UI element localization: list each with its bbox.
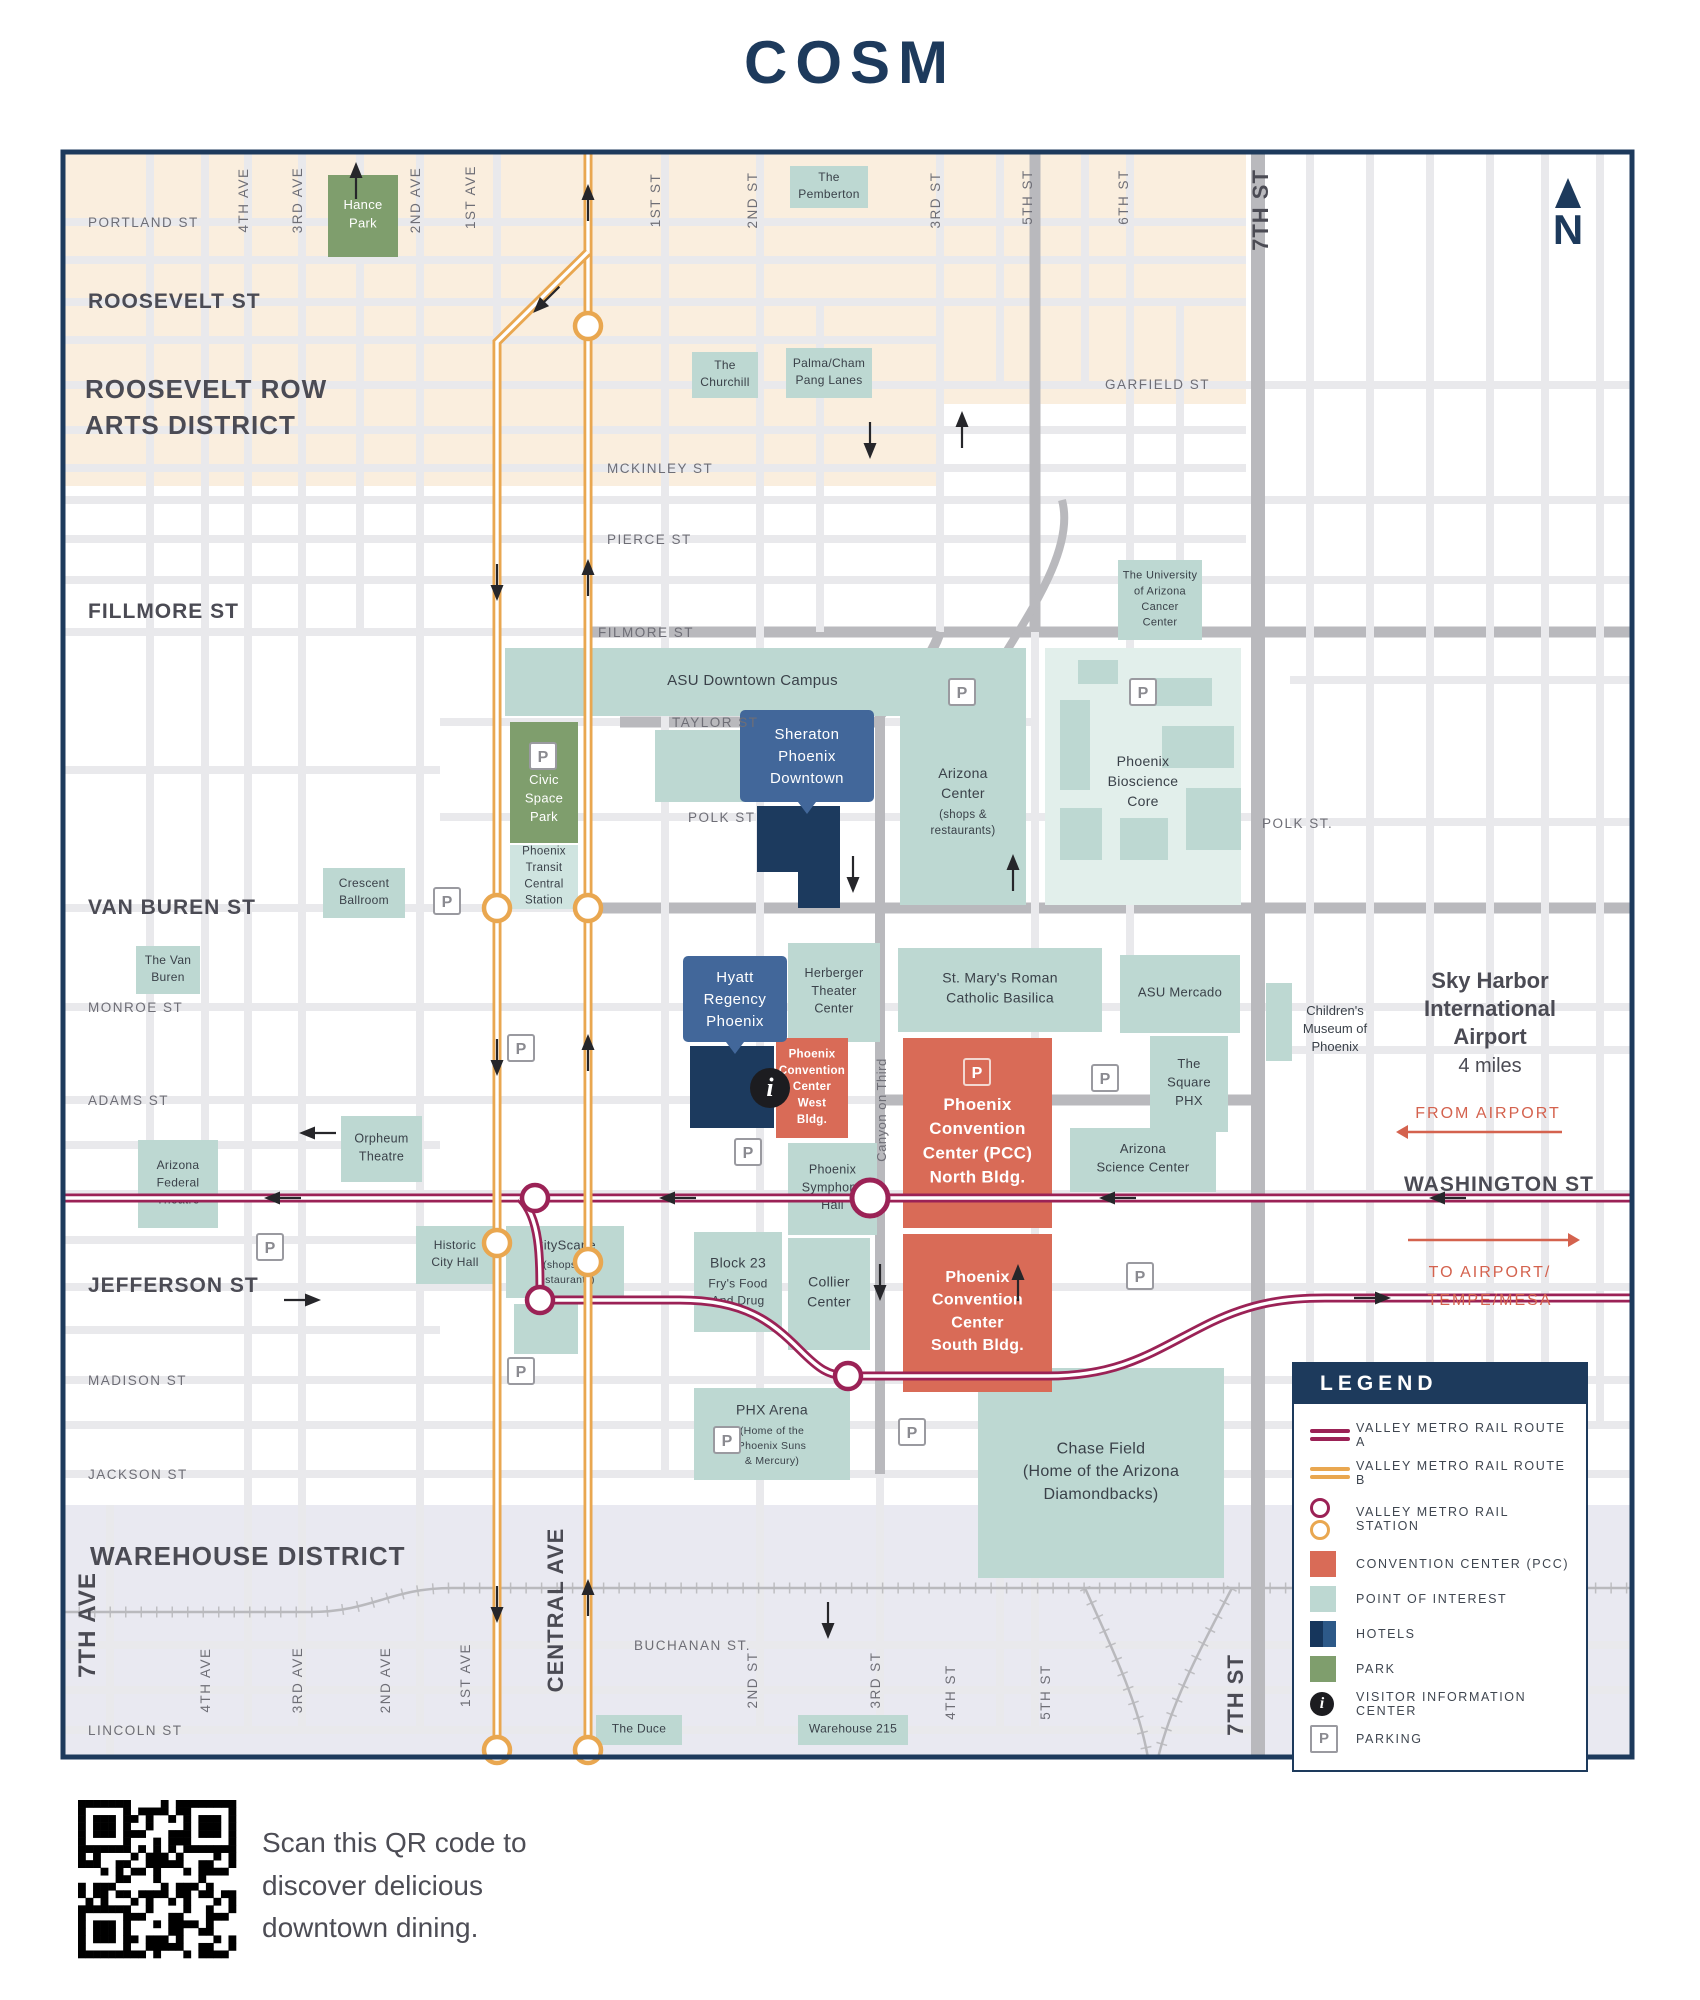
qr-module: [191, 1800, 199, 1808]
hotel-callout-label: Phoenix: [706, 1013, 764, 1030]
poi-label: Space: [525, 790, 563, 805]
qr-module: [161, 1935, 169, 1943]
poi-label: North Bldg.: [930, 1167, 1026, 1186]
qr-module: [146, 1860, 154, 1868]
qr-module: [101, 1868, 109, 1876]
poi-label: Palma/Cham: [793, 356, 865, 370]
hotel-callout-label: Sheraton: [775, 726, 840, 743]
qr-module: [191, 1920, 199, 1928]
street-label: LINCOLN ST: [88, 1723, 183, 1738]
qr-module: [206, 1823, 214, 1831]
street-label: 1ST AVE: [458, 1643, 473, 1707]
street-label: JEFFERSON ST: [88, 1274, 259, 1297]
street-label: Airport: [1453, 1024, 1527, 1049]
qr-module: [108, 1815, 116, 1823]
poi-label: Convention: [929, 1119, 1026, 1138]
street-label: FILMORE ST: [598, 625, 694, 640]
qr-module: [176, 1830, 184, 1838]
rail-station: [835, 1363, 861, 1389]
poi-label: Center: [1143, 617, 1178, 629]
qr-module: [101, 1928, 109, 1936]
qr-module: [108, 1928, 116, 1936]
qr-module: [176, 1890, 184, 1898]
qr-module: [146, 1890, 154, 1898]
poi-label: The Duce: [612, 1721, 666, 1735]
poi-label: Science Center: [1096, 1160, 1189, 1175]
legend-item-label: PARKING: [1356, 1732, 1423, 1746]
parking-icon-letter: P: [516, 1364, 527, 1381]
qr-module: [123, 1860, 131, 1868]
qr-module: [101, 1935, 109, 1943]
legend-item-route-b: VALLEY METRO RAIL ROUTE B: [1310, 1454, 1576, 1492]
qr-module: [176, 1943, 184, 1951]
qr-module: [86, 1860, 94, 1868]
qr-module: [206, 1845, 214, 1853]
poi-label: Chase Field: [1057, 1440, 1146, 1457]
street-label: PORTLAND ST: [88, 215, 199, 230]
parking-icon-letter: P: [1100, 1071, 1111, 1088]
qr-module: [93, 1800, 101, 1808]
poi-label: St. Mary's Roman: [942, 970, 1058, 986]
qr-module: [123, 1830, 131, 1838]
qr-module: [153, 1875, 161, 1883]
qr-module: [101, 1905, 109, 1913]
poi-label: Bioscience: [1108, 773, 1179, 789]
parking-icon: P: [1310, 1725, 1356, 1753]
poi-label: Pemberton: [798, 187, 859, 201]
qr-module: [168, 1913, 176, 1921]
qr-module: [191, 1845, 199, 1853]
legend-item-label: POINT OF INTEREST: [1356, 1592, 1507, 1606]
poi-label: Theatre: [359, 1149, 404, 1163]
qr-module: [183, 1920, 191, 1928]
qr-module: [183, 1883, 191, 1891]
qr-module: [191, 1883, 199, 1891]
qr-module: [213, 1950, 221, 1958]
qr-module: [138, 1808, 146, 1816]
qr-module: [138, 1913, 146, 1921]
poi-label: Cancer: [1141, 601, 1178, 613]
street-label: 4TH AVE: [236, 167, 251, 232]
qr-module: [153, 1845, 161, 1853]
qr-module: [206, 1920, 214, 1928]
qr-module: [228, 1860, 236, 1868]
qr-module: [78, 1845, 86, 1853]
poi-label: Arizona: [938, 765, 988, 781]
street-label: 4 miles: [1458, 1055, 1521, 1077]
qr-module: [153, 1920, 161, 1928]
street-label: 2ND ST: [745, 171, 760, 228]
qr-module: [101, 1920, 109, 1928]
poi-label: restaurants): [931, 825, 996, 837]
street-label: ARTS DISTRICT: [85, 410, 296, 440]
qr-module: [123, 1935, 131, 1943]
qr-module: [153, 1935, 161, 1943]
legend-items: VALLEY METRO RAIL ROUTE AVALLEY METRO RA…: [1294, 1404, 1586, 1770]
poi-label: (Home of the: [740, 1425, 804, 1437]
qr-module: [213, 1898, 221, 1906]
street-label: 3RD ST: [868, 1651, 883, 1708]
qr-module: [123, 1838, 131, 1846]
station-icon: [1310, 1497, 1356, 1541]
qr-module: [146, 1823, 154, 1831]
qr-module: [213, 1853, 221, 1861]
poi-label: Diamondbacks): [1043, 1486, 1158, 1503]
poi-icon: [1310, 1586, 1356, 1612]
qr-module: [228, 1898, 236, 1906]
street-label: Sky Harbor: [1431, 968, 1549, 993]
poi-label: PHX Arena: [736, 1401, 808, 1417]
qr-module: [123, 1808, 131, 1816]
pcc-icon: [1310, 1551, 1356, 1577]
qr-module: [123, 1905, 131, 1913]
qr-module: [146, 1853, 154, 1861]
street-label: 1ST AVE: [463, 165, 478, 229]
qr-module: [86, 1845, 94, 1853]
legend-item-park: PARK: [1310, 1651, 1576, 1686]
poi-label: & Mercury): [745, 1455, 799, 1467]
street-label: 4TH AVE: [198, 1647, 213, 1712]
street-label: 7TH AVE: [74, 1572, 101, 1678]
qr-module: [93, 1883, 101, 1891]
qr-module: [78, 1905, 86, 1913]
poi-label: The: [1177, 1056, 1200, 1071]
qr-module: [108, 1845, 116, 1853]
qr-module: [123, 1920, 131, 1928]
street-label: 5TH ST: [1020, 169, 1035, 225]
qr-module: [78, 1883, 86, 1891]
rail-station: [522, 1185, 548, 1211]
qr-module: [123, 1950, 131, 1958]
qr-module: [206, 1905, 214, 1913]
qr-module: [78, 1853, 86, 1861]
qr-module: [131, 1935, 139, 1943]
qr-module: [176, 1838, 184, 1846]
poi-label: Phoenix Suns: [738, 1440, 806, 1452]
poi-label: The: [714, 358, 736, 372]
qr-module: [183, 1823, 191, 1831]
parking-icon-letter: P: [1135, 1269, 1146, 1286]
poi-label: Center: [951, 1314, 1003, 1331]
qr-module: [161, 1853, 169, 1861]
legend-item-pcc: CONVENTION CENTER (PCC): [1310, 1546, 1576, 1581]
poi-label: Square: [1167, 1074, 1211, 1089]
qr-module: [206, 1815, 214, 1823]
qr-module: [131, 1898, 139, 1906]
parking-icon-letter: P: [516, 1041, 527, 1058]
visitor-info-icon-letter: i: [766, 1073, 774, 1102]
qr-module: [78, 1815, 86, 1823]
qr-module: [183, 1905, 191, 1913]
qr-module: [168, 1830, 176, 1838]
legend-item-parking: PPARKING: [1310, 1721, 1576, 1756]
qr-module: [108, 1883, 116, 1891]
poi-label: Pang Lanes: [795, 373, 862, 387]
street-label: BUCHANAN ST.: [634, 1638, 751, 1653]
qr-module: [168, 1898, 176, 1906]
street-label: WAREHOUSE DISTRICT: [90, 1541, 406, 1571]
legend-item-info: iVISITOR INFORMATION CENTER: [1310, 1686, 1576, 1721]
qr-module: [153, 1890, 161, 1898]
poi-label: of Arizona: [1134, 585, 1187, 597]
qr-module: [101, 1815, 109, 1823]
rail-station: [484, 895, 510, 921]
poi-label: (Home of the Arizona: [1023, 1463, 1179, 1480]
qr-module: [168, 1920, 176, 1928]
qr-module: [123, 1845, 131, 1853]
qr-module: [86, 1800, 94, 1808]
street-label: 2ND AVE: [378, 1647, 393, 1714]
qr-module: [198, 1845, 206, 1853]
poi-label: Convention: [779, 1065, 845, 1077]
qr-module: [146, 1905, 154, 1913]
qr-module: [161, 1890, 169, 1898]
map-legend: LEGEND VALLEY METRO RAIL ROUTE AVALLEY M…: [1292, 1362, 1588, 1772]
qr-module: [86, 1950, 94, 1958]
qr-module: [168, 1860, 176, 1868]
qr-module: [221, 1950, 229, 1958]
poi-label: Center: [793, 1081, 831, 1093]
qr-module: [183, 1898, 191, 1906]
legend-item-label: VISITOR INFORMATION CENTER: [1356, 1690, 1576, 1718]
street-label: WASHINGTON ST: [1404, 1173, 1594, 1196]
compass-north-letter: N: [1553, 206, 1583, 253]
qr-module: [153, 1860, 161, 1868]
street-label: Canyon on Third: [874, 1058, 889, 1161]
qr-module: [123, 1913, 131, 1921]
qr-module: [123, 1890, 131, 1898]
poi-label: Phoenix: [945, 1269, 1009, 1286]
route-b-icon: [1310, 1465, 1356, 1481]
qr-module: [161, 1860, 169, 1868]
qr-module: [228, 1808, 236, 1816]
street-label: 7TH ST: [1248, 169, 1273, 251]
qr-module: [116, 1845, 124, 1853]
qr-module: [86, 1898, 94, 1906]
qr-module: [183, 1838, 191, 1846]
poi-block: [1266, 983, 1292, 1061]
rail-station: [575, 313, 601, 339]
qr-module: [161, 1800, 169, 1808]
qr-module: [161, 1943, 169, 1951]
qr-module: [146, 1935, 154, 1943]
campus-building-block: [1078, 660, 1118, 684]
qr-module: [78, 1920, 86, 1928]
qr-module: [131, 1853, 139, 1861]
street-label: 6TH ST: [1116, 169, 1131, 225]
qr-module: [146, 1943, 154, 1951]
poi-label: Collier: [808, 1274, 850, 1290]
qr-module: [213, 1815, 221, 1823]
qr-module: [153, 1943, 161, 1951]
street-label: FILLMORE ST: [88, 600, 239, 623]
street-label: TAYLOR ST: [672, 715, 759, 730]
poi-label: Park: [349, 216, 377, 231]
qr-module: [213, 1830, 221, 1838]
qr-module: [108, 1950, 116, 1958]
legend-item-label: VALLEY METRO RAIL STATION: [1356, 1505, 1576, 1533]
qr-module: [176, 1808, 184, 1816]
poi-label: Block 23: [710, 1255, 766, 1271]
qr-module: [93, 1815, 101, 1823]
qr-module: [93, 1830, 101, 1838]
qr-module: [116, 1890, 124, 1898]
qr-module: [221, 1800, 229, 1808]
qr-module: [198, 1815, 206, 1823]
qr-module: [101, 1845, 109, 1853]
street-label: TEMPE/MESA: [1428, 1292, 1553, 1309]
street-label: MONROE ST: [88, 1000, 183, 1015]
qr-module: [206, 1890, 214, 1898]
qr-module: [176, 1928, 184, 1936]
convention-center-block: [903, 1234, 1052, 1392]
qr-module: [206, 1868, 214, 1876]
street-label: 2ND ST: [745, 1651, 760, 1708]
qr-module: [78, 1808, 86, 1816]
poi-label: Bldg.: [797, 1114, 827, 1126]
qr-module: [138, 1845, 146, 1853]
street-label: Museum of: [1303, 1021, 1368, 1036]
parking-icon-letter: P: [722, 1433, 733, 1450]
qr-module: [198, 1950, 206, 1958]
qr-module: [228, 1838, 236, 1846]
poi-label: (shops &: [939, 809, 987, 821]
street-label: GARFIELD ST: [1105, 377, 1210, 392]
qr-module: [168, 1815, 176, 1823]
hotel-callout-label: Downtown: [770, 770, 844, 787]
legend-item-hotel: HOTELS: [1310, 1616, 1576, 1651]
poi-label: Fry's Food: [708, 1277, 767, 1291]
qr-module: [198, 1860, 206, 1868]
qr-module: [78, 1943, 86, 1951]
campus-building-block: [1150, 678, 1212, 706]
qr-module: [93, 1845, 101, 1853]
parking-icon-letter: P: [743, 1145, 754, 1162]
qr-module: [123, 1800, 131, 1808]
qr-module: [183, 1800, 191, 1808]
poi-label: Phoenix: [522, 846, 566, 858]
qr-module: [206, 1830, 214, 1838]
qr-module: [228, 1890, 236, 1898]
hotel-icon: [1310, 1621, 1356, 1647]
street-label: International: [1424, 996, 1556, 1021]
street-label: FROM AIRPORT: [1415, 1105, 1561, 1122]
qr-module: [116, 1905, 124, 1913]
qr-module: [198, 1890, 206, 1898]
qr-module: [228, 1853, 236, 1861]
qr-module: [78, 1823, 86, 1831]
route-a-icon: [1310, 1427, 1356, 1443]
qr-module: [108, 1830, 116, 1838]
poi-block: [655, 730, 745, 802]
qr-module: [93, 1935, 101, 1943]
qr-module: [93, 1928, 101, 1936]
qr-module: [206, 1928, 214, 1936]
qr-module: [78, 1913, 86, 1921]
qr-module: [161, 1883, 169, 1891]
qr-module: [108, 1905, 116, 1913]
qr-module: [228, 1905, 236, 1913]
poi-label: South Bldg.: [931, 1337, 1024, 1354]
qr-module: [116, 1950, 124, 1958]
qr-module: [153, 1808, 161, 1816]
qr-module: [198, 1868, 206, 1876]
poi-label: Phoenix: [943, 1095, 1011, 1114]
qr-module: [168, 1928, 176, 1936]
qr-module: [101, 1950, 109, 1958]
qr-module: [198, 1928, 206, 1936]
qr-code: [78, 1800, 236, 1958]
rail-station: [527, 1287, 553, 1313]
qr-module: [86, 1905, 94, 1913]
street-label: CENTRAL AVE: [543, 1528, 568, 1693]
qr-module: [123, 1943, 131, 1951]
qr-module: [78, 1800, 86, 1808]
qr-module: [123, 1815, 131, 1823]
street-label: 1ST ST: [648, 173, 663, 228]
qr-module: [108, 1823, 116, 1831]
qr-module: [206, 1883, 214, 1891]
poi-label: Crescent: [339, 876, 390, 890]
qr-module: [138, 1950, 146, 1958]
qr-module: [168, 1838, 176, 1846]
qr-module: [206, 1800, 214, 1808]
street-label: 5TH ST: [1038, 1664, 1053, 1720]
qr-module: [198, 1875, 206, 1883]
poi-label: The: [818, 170, 840, 184]
park-icon: [1310, 1656, 1356, 1682]
qr-module: [228, 1935, 236, 1943]
street-label: MCKINLEY ST: [607, 461, 713, 476]
street-label: POLK ST: [688, 810, 756, 825]
rail-station: [575, 895, 601, 921]
qr-module: [206, 1860, 214, 1868]
qr-module: [198, 1823, 206, 1831]
poi-label: Phoenix: [1117, 753, 1170, 769]
qr-module: [131, 1815, 139, 1823]
poi-label: Phoenix: [809, 1163, 857, 1177]
parking-icon-letter: P: [907, 1425, 918, 1442]
poi-label: Arizona: [1120, 1141, 1167, 1156]
campus-building-block: [1186, 788, 1241, 850]
qr-module: [101, 1800, 109, 1808]
qr-module: [93, 1905, 101, 1913]
poi-label: Center: [941, 785, 985, 801]
legend-item-label: HOTELS: [1356, 1627, 1416, 1641]
hotel-callout-label: Regency: [704, 991, 767, 1008]
qr-module: [228, 1800, 236, 1808]
street-label: 3RD ST: [928, 171, 943, 228]
qr-module: [198, 1830, 206, 1838]
parking-icon-letter: P: [265, 1240, 276, 1257]
qr-module: [228, 1830, 236, 1838]
legend-item-station: VALLEY METRO RAIL STATION: [1310, 1492, 1576, 1546]
poi-label: Arizona: [157, 1158, 200, 1172]
street-label: 7TH ST: [1223, 1654, 1248, 1736]
poi-label: Center: [807, 1294, 851, 1310]
qr-module: [176, 1883, 184, 1891]
qr-module: [78, 1838, 86, 1846]
qr-module: [228, 1815, 236, 1823]
qr-module: [153, 1950, 161, 1958]
qr-module: [221, 1845, 229, 1853]
qr-module: [131, 1868, 139, 1876]
street-label: TO AIRPORT/: [1429, 1264, 1552, 1281]
poi-label: Hance: [343, 197, 382, 212]
poi-label: Theater: [811, 984, 856, 998]
qr-module: [123, 1928, 131, 1936]
street-label: 3RD AVE: [290, 1647, 305, 1714]
